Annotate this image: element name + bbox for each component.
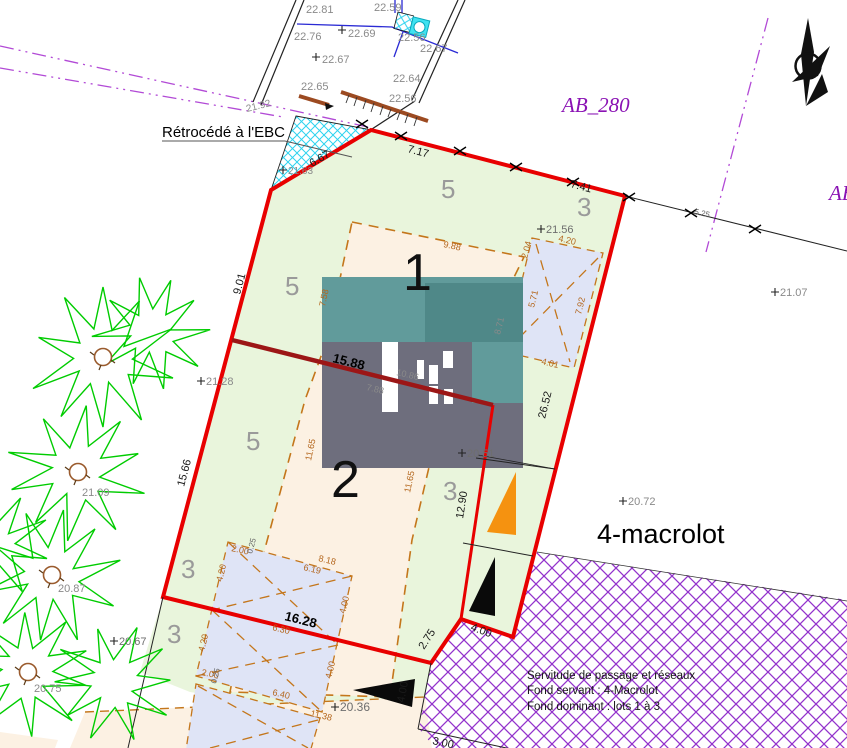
- zone-label-3: 3: [181, 554, 195, 584]
- site-plan-canvas: 22.81 22.59 22.76 22.69 22.56 22.67 22.6…: [0, 0, 847, 748]
- retrocede-callout: Rétrocédé à l'EBC: [162, 124, 285, 141]
- elevation-label: 20.51: [467, 448, 495, 460]
- servitude-note-line3: Fond dominant : lots 1 à 3: [527, 701, 660, 713]
- tree-trunk-icon: [90, 349, 115, 371]
- elevation-label: 22.64: [393, 73, 421, 85]
- parcel-label-adjacent: AB: [827, 181, 847, 205]
- elevation-label: 22.69: [348, 28, 376, 40]
- elevation-label: 21.63: [288, 166, 313, 177]
- north-arrow-icon: [792, 18, 830, 106]
- elevation-label: 21.07: [780, 287, 808, 299]
- parcel-label-ab280: AB_280: [560, 93, 630, 117]
- road-edge-lines: [253, 0, 465, 129]
- elevation-label: 22.81: [306, 4, 334, 16]
- elevation-label: 22.59: [374, 2, 402, 14]
- elevation-label: 22.76: [294, 31, 322, 43]
- elevation-label: 20.36: [340, 700, 370, 714]
- dimension-label: 5.25: [694, 207, 712, 219]
- cadastral-plan-svg: 22.81 22.59 22.76 22.69 22.56 22.67 22.6…: [0, 0, 847, 748]
- elevation-label: 21.92: [245, 98, 272, 115]
- tree-icon: [0, 499, 128, 652]
- macrolot-label: 4-macrolot: [597, 519, 725, 549]
- servitude-note-line1: Servitude de passage et réseaux: [527, 670, 695, 682]
- zone-label-3: 3: [167, 619, 181, 649]
- elevation-label: 21.28: [206, 376, 234, 388]
- corner-cream-wedge: [0, 732, 58, 748]
- lot-number-1: 1: [403, 244, 432, 302]
- elevation-label: 21.09: [82, 487, 110, 499]
- zone-label-5: 5: [441, 174, 455, 204]
- zone-label-3: 3: [577, 192, 591, 222]
- elevation-label: 20.72: [628, 496, 656, 508]
- lot-number-2: 2: [331, 451, 360, 509]
- elevation-label: 22.67: [322, 54, 350, 66]
- tree-trunk-icon: [65, 464, 90, 486]
- tree-trunk-icon: [15, 664, 40, 686]
- zone-label-5: 5: [285, 271, 299, 301]
- zone-label-3: 3: [443, 476, 457, 506]
- elevation-label: 20.75: [34, 683, 62, 695]
- servitude-note-line2: Fond servant : 4-Macrolot: [527, 685, 659, 697]
- zone-label-5: 5: [246, 426, 260, 456]
- elevation-label: 22.56: [389, 93, 417, 105]
- elevation-label: 22.67: [420, 43, 448, 55]
- elevation-label: 20.87: [58, 583, 86, 595]
- elevation-label: 20.67: [119, 636, 147, 648]
- elevation-label: 22.65: [301, 81, 329, 93]
